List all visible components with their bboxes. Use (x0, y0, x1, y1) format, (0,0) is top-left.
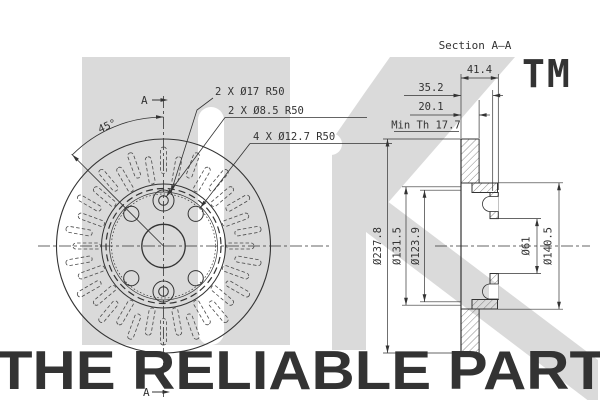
lower-hat-flange (472, 300, 498, 310)
friction-id-dim: Ø123.9 (410, 227, 422, 265)
logo-k-stem (332, 91, 366, 350)
counterbore-hole-label: 2 X Ø17 R50 (215, 86, 285, 98)
lower-brake-band (461, 309, 479, 353)
upper-brake-band (461, 139, 479, 183)
section-marker-bottom-label: A (143, 386, 150, 399)
disc-thickness-dim: 20.1 (418, 101, 443, 113)
friction-od-dim: Ø131.5 (392, 227, 404, 265)
section-title: Section A–A (439, 39, 512, 52)
bolt-hole-label: 4 X Ø12.7 R50 (253, 131, 335, 143)
section-marker-top-label: A (141, 94, 148, 107)
hat-depth-dim: 35.2 (418, 82, 443, 94)
outer-diameter-dim: Ø237.8 (372, 227, 384, 265)
upper-hat-flange (472, 183, 498, 193)
overall-width-dim: 41.4 (467, 64, 492, 76)
logo-n-slot (198, 107, 224, 345)
hat-diameter-dim: Ø140.5 (543, 227, 555, 265)
min-thickness-dim: Min Th 17.7 (391, 120, 461, 132)
trademark-text: TM (522, 52, 572, 96)
technical-drawing-page: TM THE RELIABLE PART (0, 0, 600, 400)
slogan-text: THE RELIABLE PART (0, 339, 600, 400)
center-bore-dim: Ø61 (521, 237, 533, 256)
pin-hole-label: 2 X Ø8.5 R50 (228, 105, 304, 117)
brake-disc-drawing: TM THE RELIABLE PART (0, 0, 600, 400)
